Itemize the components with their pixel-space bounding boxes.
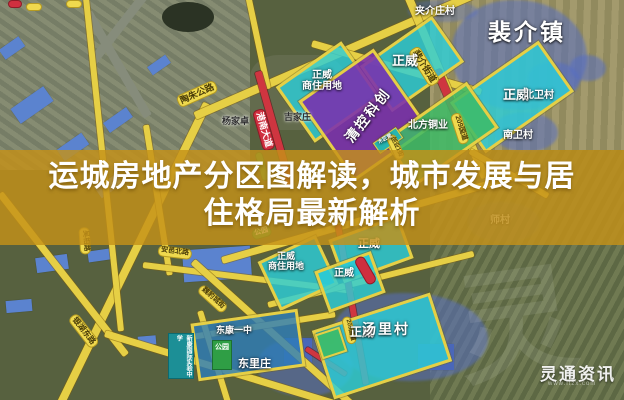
zone-label-line: 正威 — [302, 70, 342, 81]
poi-label-park: 公园 — [215, 344, 229, 352]
cover-title-line1: 运城房地产分区图解读，城市发展与居 — [0, 158, 624, 195]
cover-title: 运城房地产分区图解读，城市发展与居 住格局最新解析 — [0, 158, 624, 232]
place-label-yangjiazhuo: 杨家卓 — [222, 114, 249, 127]
place-label-beiwei: 北卫村 — [524, 90, 554, 101]
zone-label-zhengwei-top: 正威 — [392, 54, 418, 68]
place-label-jijiazhuang: 吉家庄 — [284, 110, 311, 123]
poi-label-xinkang: 新康国际实验中学 — [170, 335, 192, 377]
village-area — [570, 55, 606, 81]
place-label-donglizhuang: 东里庄 — [238, 358, 271, 370]
poi-box — [26, 3, 42, 11]
watermark-url: www.ltzx.com — [548, 381, 596, 387]
poi-box — [66, 0, 82, 8]
map-cover-image: 陶朱公路 裴介街道 209国道 209国道 港南大道 银湖东路 魏豹城街 安邑北… — [0, 0, 624, 400]
building — [6, 299, 33, 313]
zone-label-line: 商住用地 — [302, 81, 342, 92]
zone-label-zhengwei-b2: 正威 — [334, 268, 354, 279]
zone-label-zhengwei-biz-bottom: 正威 商住用地 — [268, 252, 304, 272]
place-label-peijie-town: 裴介镇 — [488, 20, 566, 45]
poi-label-dongkang: 东康一中 — [216, 326, 252, 336]
poi-box — [8, 0, 22, 8]
lake — [162, 2, 214, 32]
place-label-jiajiezhuang: 夹介庄村 — [415, 6, 455, 17]
zone-label-line: 商住用地 — [268, 262, 304, 272]
building — [87, 249, 110, 263]
zone-label-zhengwei-biz-top: 正威 商住用地 — [302, 70, 342, 92]
zone-label-beifang: 北方铜业 — [408, 120, 448, 131]
cover-title-line2: 住格局最新解析 — [0, 195, 624, 232]
place-label-nanwei: 南卫村 — [503, 130, 533, 141]
place-label-tangli: 汤里村 — [362, 322, 410, 337]
road-label-anyi: 安邑北路 — [157, 245, 192, 260]
